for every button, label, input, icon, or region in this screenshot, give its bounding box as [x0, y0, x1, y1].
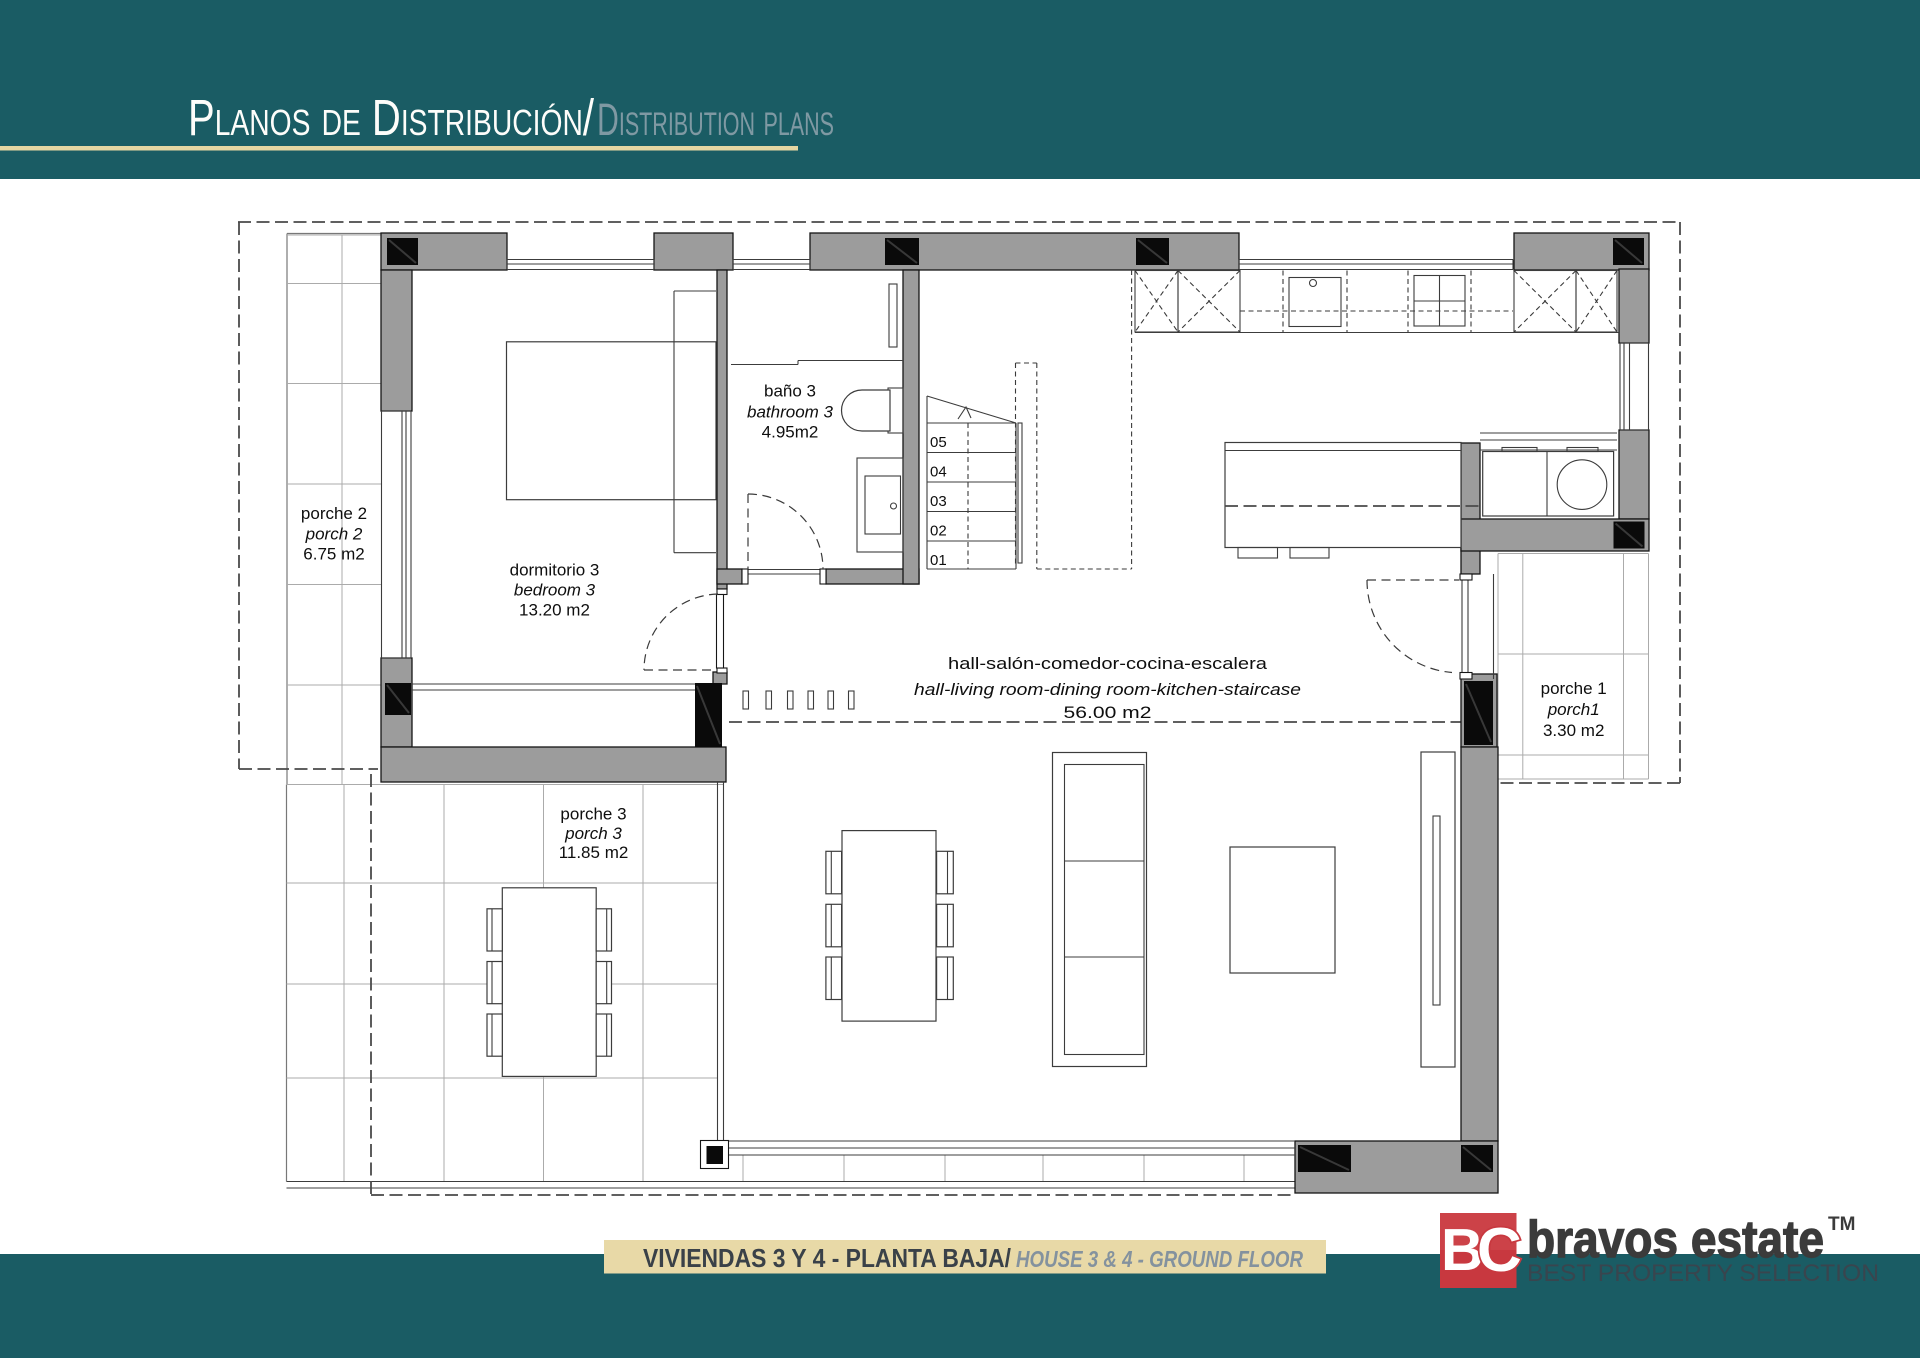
svg-text:03: 03 — [930, 493, 947, 510]
svg-text:04: 04 — [930, 464, 947, 481]
svg-text:porch 2: porch 2 — [305, 525, 363, 544]
svg-text:05: 05 — [930, 434, 947, 451]
svg-text:56.00 m2: 56.00 m2 — [1064, 703, 1152, 722]
svg-text:02: 02 — [930, 523, 947, 540]
svg-text:01: 01 — [930, 552, 947, 569]
svg-text:porch1: porch1 — [1547, 700, 1600, 719]
svg-text:hall-living room-dining room-k: hall-living room-dining room-kitchen-sta… — [914, 680, 1301, 699]
svg-text:4.95m2: 4.95m2 — [762, 423, 819, 442]
svg-text:hall-salón-comedor-cocina-esca: hall-salón-comedor-cocina-escalera — [948, 654, 1268, 673]
svg-text:baño 3: baño 3 — [764, 382, 816, 401]
svg-text:C: C — [1477, 1216, 1522, 1285]
svg-text:bathroom 3: bathroom 3 — [747, 403, 834, 422]
svg-text:6.75 m2: 6.75 m2 — [303, 545, 364, 564]
svg-text:Distribution plans: Distribution plans — [597, 94, 834, 145]
svg-text:porche 3: porche 3 — [560, 805, 626, 824]
svg-text:13.20 m2: 13.20 m2 — [519, 601, 590, 620]
svg-text:BEST PROPERTY SELECTION: BEST PROPERTY SELECTION — [1527, 1260, 1879, 1287]
svg-text:11.85 m2: 11.85 m2 — [559, 843, 629, 862]
svg-text:HOUSE 3 & 4 - GROUND FLOOR: HOUSE 3 & 4 - GROUND FLOOR — [1016, 1246, 1303, 1272]
svg-text:bedroom 3: bedroom 3 — [514, 581, 596, 600]
svg-text:Planos de Distribución/: Planos de Distribución/ — [188, 89, 595, 146]
svg-text:porche 2: porche 2 — [301, 504, 367, 523]
svg-text:porche 1: porche 1 — [1541, 679, 1607, 698]
svg-text:porch 3: porch 3 — [564, 824, 622, 843]
svg-text:3.30 m2: 3.30 m2 — [1543, 721, 1604, 740]
svg-text:dormitorio 3: dormitorio 3 — [510, 561, 600, 580]
svg-text:TM: TM — [1828, 1214, 1855, 1235]
svg-text:VIVIENDAS 3 Y 4 - PLANTA BAJA/: VIVIENDAS 3 Y 4 - PLANTA BAJA/ — [643, 1243, 1011, 1273]
